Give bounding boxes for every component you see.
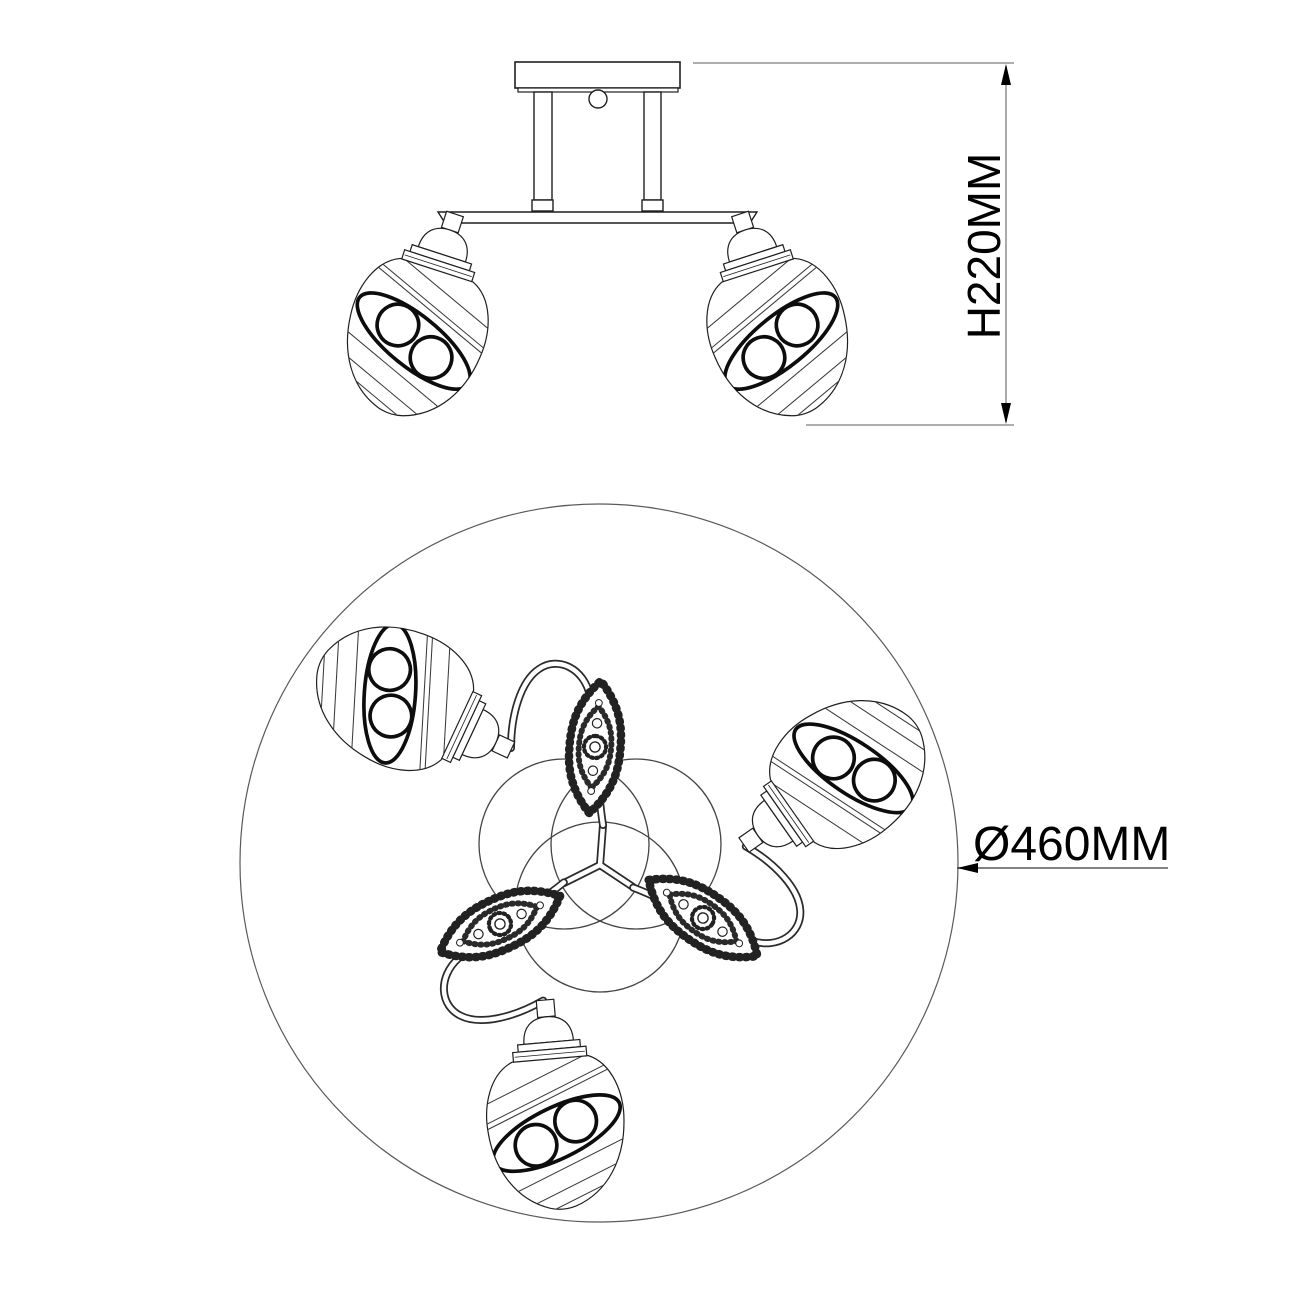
chandelier-dimension-drawing: H220MM	[0, 0, 1300, 1300]
hanger-rods	[532, 92, 663, 211]
mount-bar	[438, 212, 757, 223]
diameter-dimension: Ø460MM	[957, 818, 1170, 873]
arrow-down-icon	[1001, 403, 1011, 424]
lamp-shade-side-right	[668, 191, 886, 463]
crystal-leaf-ornament-left	[429, 873, 571, 975]
height-dimension-label: H220MM	[958, 153, 1010, 340]
crystal-leaf-ornament-right	[634, 859, 772, 977]
lamp-shade-plan-upper-left	[264, 581, 543, 819]
crystal-leaf-ornament-top	[564, 679, 626, 816]
top-view	[240, 504, 982, 1243]
center-hub	[564, 825, 633, 887]
diameter-dimension-label: Ø460MM	[973, 818, 1170, 871]
lamp-shade-plan-bottom	[469, 993, 641, 1242]
ceiling-plate	[515, 62, 680, 92]
screw-knob	[589, 90, 607, 108]
drawing-page: H220MM	[0, 0, 1300, 1300]
lamp-shade-plan-upper-right	[700, 647, 981, 907]
lamp-shade-side-left	[310, 191, 528, 463]
arrow-up-icon	[1001, 64, 1011, 85]
side-view	[310, 62, 886, 463]
